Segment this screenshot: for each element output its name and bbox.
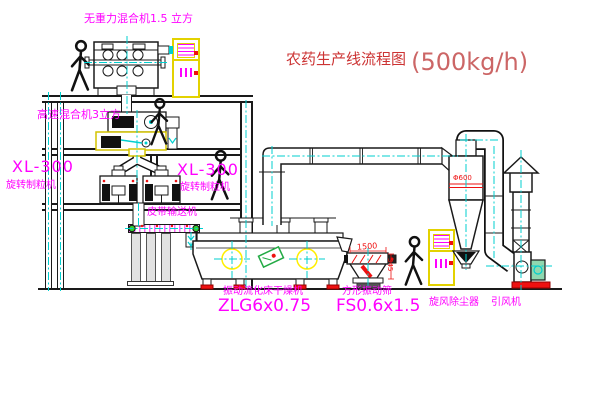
worker-figure [406,237,422,284]
gravity-free-mixer [85,42,173,112]
granulator-left [100,166,137,203]
label-granulator-left-name: 旋转制粒机 [6,181,56,191]
label-gravity-free-mixer: 无重力混合机1.5 立方 [84,13,193,24]
label-high-speed-mixer: 高速混合机3立方 [37,109,121,120]
granulator-right [143,166,180,203]
page-title: 农药生产线流程图 (500kg/h) [286,50,528,74]
exhaust-duct [259,148,454,225]
title-capacity: (500kg/h) [411,48,528,76]
label-cyclone: 旋风除尘器 [429,298,479,308]
dim-sieve-height: 345 [386,258,393,271]
fan-motor [531,260,545,280]
dim-sieve-length: 1500 [357,242,378,251]
title-text: 农药生产线流程图 [286,50,406,68]
label-dryer-model: ZLG6x0.75 [218,298,311,315]
tag-cyclone: Φ600 [453,175,472,182]
dryer-top-ports [239,218,328,233]
label-granulator-right-name: 旋转制粒机 [180,183,230,193]
cyclone-dust-collector [449,140,483,268]
fluid-bed-dryer [193,218,347,289]
label-granulator-right-model: XL-300 [177,162,239,178]
fan-base [512,282,550,288]
label-granulator-left-model: XL-300 [12,159,74,175]
label-fan: 引风机 [491,298,521,308]
label-belt-conveyor: 皮带输送机 [147,208,197,218]
induced-draft-fan [512,252,550,288]
process-flow-diagram: 农药生产线流程图 (500kg/h) 无重力混合机1.5 立方 高速混合机3立方… [0,0,600,403]
label-sieve-model: FS0.6x1.5 [336,298,420,315]
